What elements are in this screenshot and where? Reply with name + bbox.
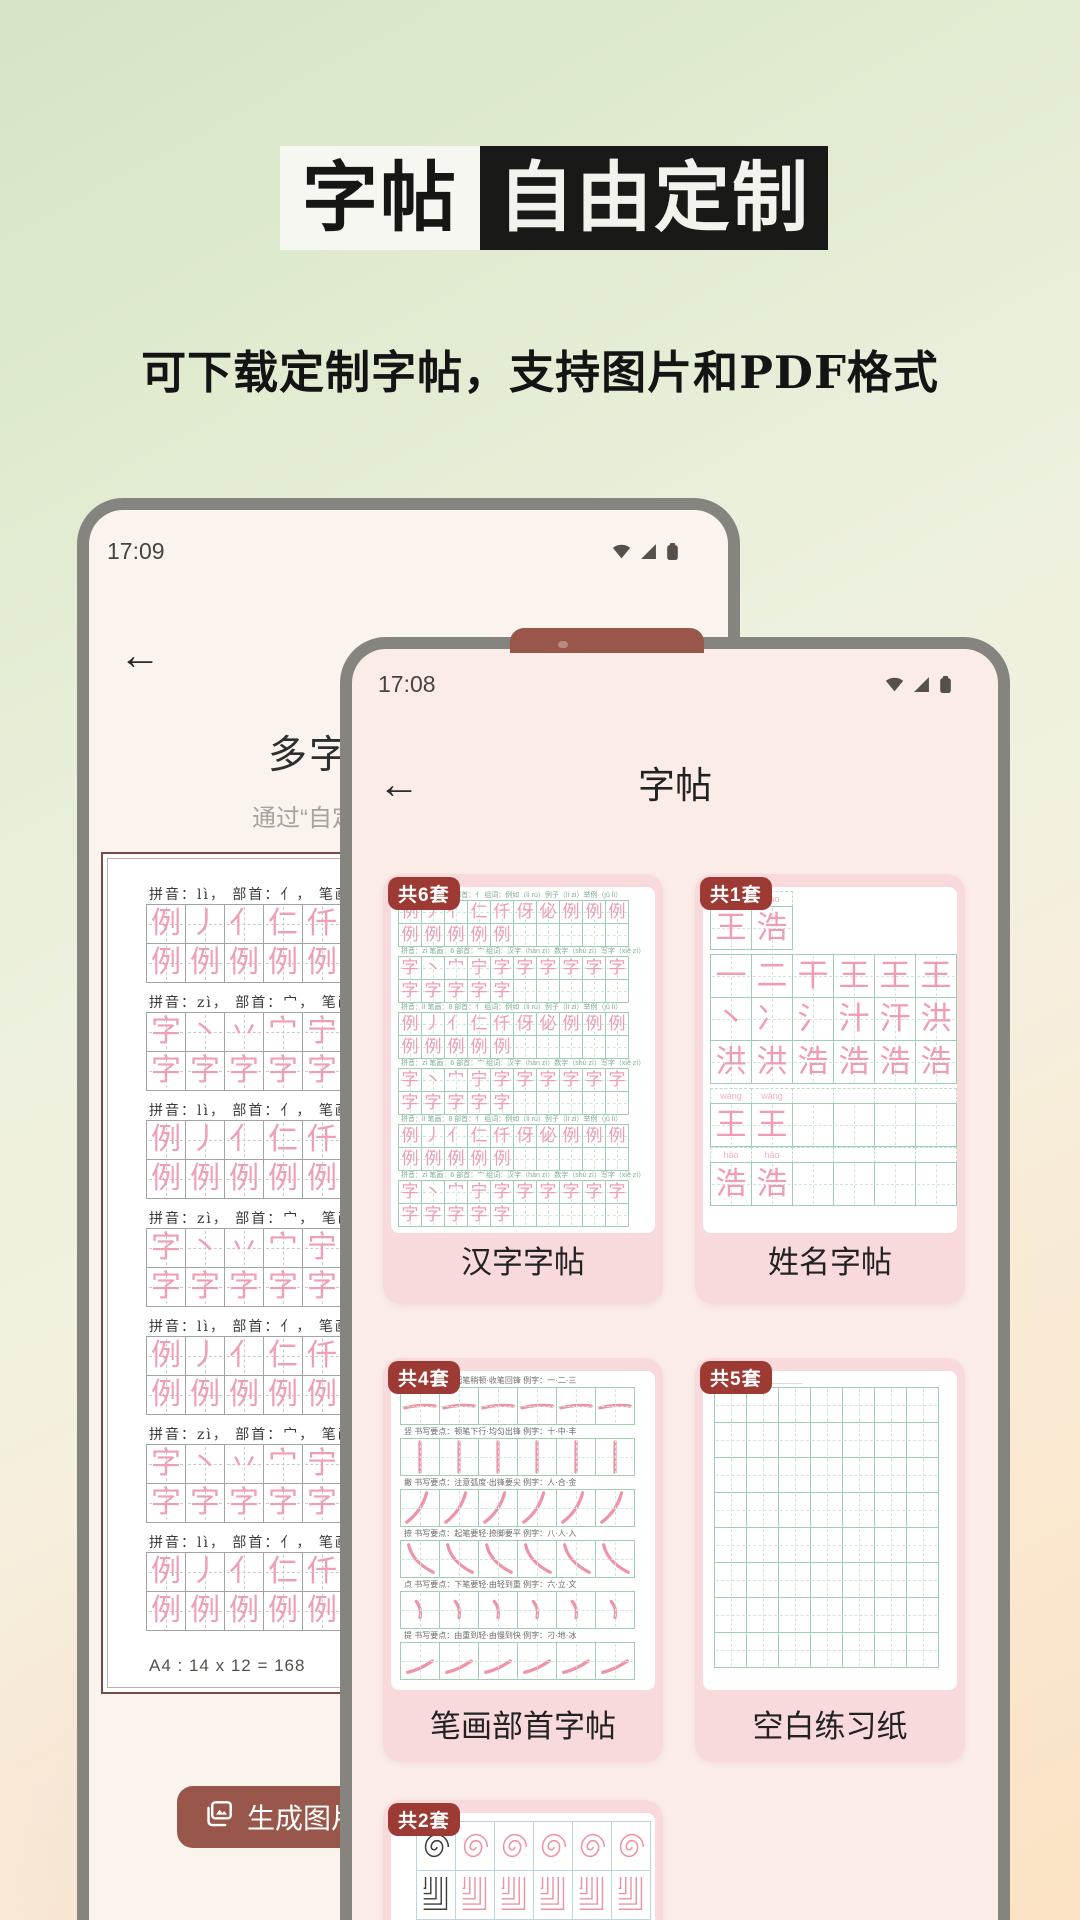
thumb-cell: 亻 xyxy=(444,1124,468,1148)
thumb-cell: 例 xyxy=(582,1012,606,1036)
blank-cell xyxy=(778,1492,811,1528)
worksheet-cell: 仟 xyxy=(302,1336,342,1376)
worksheet-cell: 例 xyxy=(263,1591,303,1631)
pattern-row xyxy=(417,1870,655,1920)
worksheet-cell: 仁 xyxy=(263,1552,303,1592)
worksheet-cell: 亻 xyxy=(224,1552,264,1592)
thumb-cell: 汗 xyxy=(874,997,916,1041)
stroke-cell xyxy=(478,1642,518,1680)
thumb-row: 字字字字字 xyxy=(399,1203,655,1227)
blank-cell xyxy=(810,1422,843,1458)
worksheet-cell: 丿 xyxy=(185,904,225,944)
stroke-row xyxy=(401,1540,655,1578)
thumb-cell: 字 xyxy=(467,1091,491,1115)
worksheet-cell: 仟 xyxy=(302,1552,342,1592)
thumb-cell xyxy=(605,1091,629,1115)
thumb-cell: 例 xyxy=(559,1012,583,1036)
thumb-cell: 字 xyxy=(490,1203,514,1227)
stroke-cell xyxy=(439,1591,479,1629)
thumb-cell: 字 xyxy=(605,1180,629,1204)
thumb-cell: 宀 xyxy=(444,1180,468,1204)
name-stroke-block: 一二干王王王丶冫氵汁汗洪洪洪浩浩浩浩 xyxy=(711,954,957,1084)
worksheet-cell: 仁 xyxy=(263,904,303,944)
cell-signal-icon xyxy=(640,544,657,559)
worksheet-cell: 丿 xyxy=(185,1552,225,1592)
thumb-cell: 例 xyxy=(398,1124,422,1148)
thumb-cell: 佖 xyxy=(536,1012,560,1036)
blank-row xyxy=(715,1632,957,1668)
worksheet-cell: 字 xyxy=(146,1051,186,1091)
thumb-cell: 亻 xyxy=(444,1012,468,1036)
card-count-badge: 共5套 xyxy=(700,1361,772,1394)
thumb-cell: 氵 xyxy=(792,997,834,1041)
worksheet-cell: 丶 xyxy=(185,1012,225,1052)
image-icon xyxy=(203,1798,235,1837)
thumb-cell: 字 xyxy=(490,956,514,980)
phone-mockup-front: 17:08 ← 字帖 共6套拼音：lì 笔画：8 部首：亻 组词：例如（lì r… xyxy=(340,637,1010,1920)
thumb-cell: 佖 xyxy=(536,1124,560,1148)
blank-cell xyxy=(810,1562,843,1598)
blank-cell xyxy=(778,1597,811,1633)
worksheet-cell: 亻 xyxy=(224,904,264,944)
thumb-cell: 例 xyxy=(490,923,514,947)
blank-cell xyxy=(810,1597,843,1633)
blank-cell xyxy=(842,1562,875,1598)
stroke-block: 竖 书写要点：顿笔下行·均匀出锋 例字：十·中·丰 xyxy=(401,1426,655,1476)
phone2-screen: 17:08 ← 字帖 共6套拼音：lì 笔画：8 部首：亻 组词：例如（lì r… xyxy=(352,649,998,1920)
stroke-row-header: 撇 书写要点：注意弧度·出锋要尖 例字：人·合·金 xyxy=(404,1477,655,1488)
thumb-cell: 二 xyxy=(751,954,793,998)
stroke-cell xyxy=(517,1489,557,1527)
thumb-cell xyxy=(833,1103,875,1147)
stroke-cell xyxy=(595,1642,635,1680)
blank-row xyxy=(715,1562,957,1598)
worksheet-cell: 丿 xyxy=(185,1336,225,1376)
thumb-cell: 例 xyxy=(582,900,606,924)
card-count-badge: 共4套 xyxy=(388,1361,460,1394)
thumb-cell: 宁 xyxy=(467,1180,491,1204)
blank-cell xyxy=(906,1562,939,1598)
card-title: 笔画部首字帖 xyxy=(383,1701,663,1746)
thumb-block: 拼音：zì 笔画：6 部首：宀 组词：汉字（hàn zì）数字（shù zì）写… xyxy=(399,1171,655,1227)
worksheet-cell: 例 xyxy=(185,1159,225,1199)
blank-cell xyxy=(810,1527,843,1563)
worksheet-cell: 字 xyxy=(185,1267,225,1307)
worksheet-cell: 字 xyxy=(263,1051,303,1091)
thumb-cell xyxy=(559,1091,583,1115)
pattern-cell-corner xyxy=(572,1870,612,1920)
thumb-row: 字字字字字 xyxy=(399,1091,655,1115)
worksheet-cell: 例 xyxy=(185,943,225,983)
blank-cell xyxy=(842,1527,875,1563)
thumb-cell: 例 xyxy=(444,923,468,947)
thumb-micro-header: 拼音：zì 笔画：6 部首：宀 组词：汉字（hàn zì）数字（shù zì）写… xyxy=(401,1059,655,1068)
battery-icon xyxy=(939,676,952,693)
worksheet-cell: 字 xyxy=(263,1483,303,1523)
worksheet-cell: 宁 xyxy=(302,1012,342,1052)
thumb-pinyin-cell xyxy=(874,1088,916,1104)
worksheet-cell: 丶 xyxy=(185,1444,225,1484)
worksheet-cell: 例 xyxy=(224,1159,264,1199)
thumb-cell: 浩 xyxy=(751,1162,793,1206)
thumb-cell xyxy=(792,1162,834,1206)
thumb-cell: 宁 xyxy=(467,956,491,980)
thumb-cell xyxy=(833,1162,875,1206)
card-title: 汉字字帖 xyxy=(383,1237,663,1282)
thumb-row: 例例例例例 xyxy=(399,923,655,947)
thumb-cell: 例 xyxy=(398,1147,422,1171)
worksheet-cell: 丷 xyxy=(224,1012,264,1052)
thumb-cell xyxy=(582,923,606,947)
worksheet-cell: 例 xyxy=(146,1159,186,1199)
blank-row xyxy=(715,1422,957,1458)
thumb-cell: 例 xyxy=(467,1147,491,1171)
thumb-cell: 字 xyxy=(467,979,491,1003)
thumb-cell: 字 xyxy=(513,1068,537,1092)
worksheet-cell: 仁 xyxy=(263,1336,303,1376)
blank-cell xyxy=(842,1422,875,1458)
thumb-cell: 冫 xyxy=(751,997,793,1041)
blank-cell xyxy=(778,1632,811,1668)
blank-row xyxy=(715,1457,957,1493)
thumb-cell xyxy=(874,1103,916,1147)
worksheet-cell: 字 xyxy=(224,1051,264,1091)
thumb-cell: 一 xyxy=(710,954,752,998)
thumb-row: 洪洪浩浩浩浩 xyxy=(711,1040,957,1084)
blank-cell xyxy=(714,1562,747,1598)
thumb-cell: 字 xyxy=(536,1180,560,1204)
pattern-cell-corner xyxy=(494,1870,534,1920)
blank-cell xyxy=(906,1527,939,1563)
stroke-cell xyxy=(556,1489,596,1527)
hero-title-part2: 自由定制 xyxy=(480,146,828,250)
thumb-cell xyxy=(582,1147,606,1171)
thumb-row: 一二干王王王 xyxy=(711,954,957,998)
thumb-cell xyxy=(792,1103,834,1147)
worksheet-cell: 字 xyxy=(146,1228,186,1268)
thumb-cell: 字 xyxy=(444,979,468,1003)
worksheet-cell: 例 xyxy=(185,1375,225,1415)
blank-cell xyxy=(842,1492,875,1528)
thumb-cell: 字 xyxy=(582,956,606,980)
thumb-cell xyxy=(513,979,537,1003)
worksheet-cell: 字 xyxy=(263,1267,303,1307)
thumb-cell: 例 xyxy=(467,923,491,947)
worksheet-cell: 宀 xyxy=(263,1012,303,1052)
thumb-cell: 仟 xyxy=(490,900,514,924)
stroke-cell xyxy=(595,1540,635,1578)
blank-cell xyxy=(714,1632,747,1668)
thumb-pinyin-row: wángwáng xyxy=(711,1088,957,1104)
thumb-cell xyxy=(536,1147,560,1171)
thumb-cell: 丿 xyxy=(421,1012,445,1036)
blank-cell xyxy=(746,1492,779,1528)
worksheet-cell: 仟 xyxy=(302,1120,342,1160)
stroke-cell xyxy=(517,1591,557,1629)
thumb-pinyin-cell xyxy=(874,1147,916,1163)
hero-title-part1: 字帖 xyxy=(280,146,480,250)
cell-signal-icon xyxy=(913,677,930,692)
blank-cell xyxy=(842,1632,875,1668)
blank-cell xyxy=(714,1492,747,1528)
thumb-row: 例例例例例 xyxy=(399,1147,655,1171)
stroke-cell xyxy=(517,1540,557,1578)
thumb-cell: 宀 xyxy=(444,956,468,980)
stroke-cell xyxy=(478,1540,518,1578)
stroke-cell xyxy=(478,1489,518,1527)
worksheet-cell: 仁 xyxy=(263,1120,303,1160)
stroke-cell xyxy=(400,1489,440,1527)
copybook-card-blank[interactable]: 共5套姓名＿＿＿＿ ＿＿＿＿空白练习纸 xyxy=(695,1358,965,1762)
thumb-micro-header: 拼音：lì 笔画：8 部首：亻 组词：例如（lì rú）例子（lì zi）举例（… xyxy=(401,1115,655,1124)
thumb-cell: 例 xyxy=(582,1124,606,1148)
thumb-cell: 仁 xyxy=(467,900,491,924)
blank-cell xyxy=(842,1387,875,1423)
stroke-cell xyxy=(439,1642,479,1680)
thumb-row: 例丿亻仁仟伢佖例例例 xyxy=(399,1012,655,1036)
thumb-cell: 浩 xyxy=(915,1040,957,1084)
worksheet-cell: 字 xyxy=(302,1051,342,1091)
thumb-cell: 例 xyxy=(444,1147,468,1171)
thumb-row: 字丶宀宁字字字字字字 xyxy=(399,1180,655,1204)
blank-cell xyxy=(714,1597,747,1633)
thumb-cell: 王 xyxy=(874,954,916,998)
blank-cell xyxy=(906,1632,939,1668)
phone2-status-bar: 17:08 xyxy=(378,671,952,698)
thumb-cell: 字 xyxy=(398,979,422,1003)
thumb-cell xyxy=(536,1091,560,1115)
phone1-status-icons xyxy=(612,543,679,560)
worksheet-cell: 宁 xyxy=(302,1228,342,1268)
stroke-cell xyxy=(556,1642,596,1680)
worksheet-cell: 例 xyxy=(146,1375,186,1415)
blank-row xyxy=(715,1492,957,1528)
thumb-row: 字丶宀宁字字字字字字 xyxy=(399,1068,655,1092)
thumb-cell: 干 xyxy=(792,954,834,998)
blank-cell xyxy=(714,1422,747,1458)
worksheet-cell: 字 xyxy=(146,1483,186,1523)
thumb-cell: 字 xyxy=(490,1180,514,1204)
pattern-cell-spiral xyxy=(611,1821,651,1871)
worksheet-cell: 例 xyxy=(146,1552,186,1592)
card-count-badge: 共2套 xyxy=(388,1803,460,1836)
thumb-cell xyxy=(513,1203,537,1227)
thumb-cell: 王 xyxy=(751,1103,793,1147)
stroke-row-header: 捺 书写要点：起笔要轻·捺脚要平 例字：八·人·入 xyxy=(404,1528,655,1539)
thumb-cell: 浩 xyxy=(833,1040,875,1084)
stroke-cell xyxy=(400,1591,440,1629)
thumb-cell: 佖 xyxy=(536,900,560,924)
thumb-cell xyxy=(559,923,583,947)
stroke-block: 提 书写要点：由重到轻·由慢到快 例字：刁·地·冰 xyxy=(401,1630,655,1680)
thumb-pinyin-cell: hào xyxy=(710,1147,752,1163)
thumb-row: 浩浩 xyxy=(711,1162,957,1206)
blank-cell xyxy=(746,1597,779,1633)
thumb-cell: 字 xyxy=(582,1180,606,1204)
thumb-cell: 仟 xyxy=(490,1012,514,1036)
thumb-block: 拼音：zì 笔画：6 部首：宀 组词：汉字（hàn zì）数字（shù zì）写… xyxy=(399,1059,655,1115)
thumb-pinyin-cell xyxy=(792,1088,834,1104)
worksheet-cell: 例 xyxy=(185,1591,225,1631)
blank-cell xyxy=(810,1387,843,1423)
worksheet-cell: 字 xyxy=(302,1483,342,1523)
worksheet-cell: 例 xyxy=(263,1375,303,1415)
worksheet-cell: 字 xyxy=(224,1483,264,1523)
thumb-cell xyxy=(582,1035,606,1059)
thumb-cell xyxy=(874,1162,916,1206)
thumb-cell: 例 xyxy=(421,1035,445,1059)
blank-cell xyxy=(874,1632,907,1668)
thumb-row: 字丶宀宁字字字字字字 xyxy=(399,956,655,980)
phone2-page-title: 字帖 xyxy=(352,755,998,809)
worksheet-cell: 例 xyxy=(224,1375,264,1415)
blank-cell xyxy=(874,1457,907,1493)
thumb-cell: 字 xyxy=(536,956,560,980)
thumb-pinyin-cell: hào xyxy=(751,1147,793,1163)
thumb-pinyin-cell: wáng xyxy=(751,1088,793,1104)
worksheet-cell: 例 xyxy=(302,1591,342,1631)
worksheet-cell: 宀 xyxy=(263,1228,303,1268)
name-practice-block: hàohào浩浩 xyxy=(711,1147,957,1206)
thumb-cell: 字 xyxy=(536,1068,560,1092)
blank-cell xyxy=(906,1457,939,1493)
thumb-pinyin-cell xyxy=(833,1088,875,1104)
thumb-row: 例丿亻仁仟伢佖例例例 xyxy=(399,1124,655,1148)
thumb-cell: 字 xyxy=(490,979,514,1003)
worksheet-cell: 例 xyxy=(302,943,342,983)
thumb-cell: 字 xyxy=(398,956,422,980)
thumb-cell: 字 xyxy=(513,956,537,980)
blank-cell xyxy=(874,1422,907,1458)
thumb-pinyin-cell xyxy=(833,1147,875,1163)
thumb-cell: 例 xyxy=(605,1124,629,1148)
stroke-cell xyxy=(595,1489,635,1527)
thumb-cell: 汁 xyxy=(833,997,875,1041)
thumb-cell: 例 xyxy=(559,900,583,924)
thumb-cell: 字 xyxy=(490,1068,514,1092)
worksheet-cell: 字 xyxy=(185,1051,225,1091)
blank-cell xyxy=(874,1562,907,1598)
card-thumbnail: wánghào王浩一二干王王王丶冫氵汁汗洪洪洪浩浩浩浩wángwáng王王hào… xyxy=(703,887,957,1233)
stroke-cell xyxy=(556,1540,596,1578)
thumb-cell: 字 xyxy=(513,1180,537,1204)
copybook-card-pattern[interactable]: 共2套 xyxy=(383,1800,663,1920)
stroke-cell xyxy=(439,1489,479,1527)
worksheet-footer: A4 : 14 x 12 = 168 xyxy=(149,1656,305,1676)
thumb-cell xyxy=(559,1203,583,1227)
worksheet-cell: 例 xyxy=(302,1375,342,1415)
stroke-cell xyxy=(517,1642,557,1680)
worksheet-cell: 丷 xyxy=(224,1228,264,1268)
worksheet-cell: 例 xyxy=(146,943,186,983)
pattern-cell-corner xyxy=(533,1870,573,1920)
thumb-cell xyxy=(582,1203,606,1227)
thumb-cell: 字 xyxy=(421,1203,445,1227)
thumb-cell xyxy=(513,1147,537,1171)
thumb-row: 丶冫氵汁汗洪 xyxy=(711,997,957,1041)
thumb-cell: 字 xyxy=(605,1068,629,1092)
thumb-cell: 仁 xyxy=(467,1012,491,1036)
stroke-cell xyxy=(595,1591,635,1629)
stroke-cell xyxy=(556,1438,596,1476)
copybook-card-name[interactable]: 共1套wánghào王浩一二干王王王丶冫氵汁汗洪洪洪浩浩浩浩wángwáng王王… xyxy=(695,874,965,1304)
blank-cell xyxy=(810,1632,843,1668)
battery-icon xyxy=(666,543,679,560)
wifi-icon xyxy=(612,544,631,559)
worksheet-cell: 字 xyxy=(146,1444,186,1484)
stroke-cell xyxy=(556,1387,596,1425)
stroke-row-header: 竖 书写要点：顿笔下行·均匀出锋 例字：十·中·丰 xyxy=(404,1426,655,1437)
card-count-badge: 共6套 xyxy=(388,877,460,910)
blank-cell xyxy=(778,1562,811,1598)
thumb-cell: 仁 xyxy=(467,1124,491,1148)
brown-button-peek[interactable] xyxy=(510,628,704,653)
blank-cell xyxy=(778,1457,811,1493)
blank-cell xyxy=(842,1597,875,1633)
thumb-cell: 洪 xyxy=(751,1040,793,1084)
thumb-cell: 字 xyxy=(444,1091,468,1115)
thumb-block: 拼音：lì 笔画：8 部首：亻 组词：例如（lì rú）例子（lì zi）举例（… xyxy=(399,1115,655,1171)
blank-cell xyxy=(874,1492,907,1528)
thumb-cell: 例 xyxy=(398,923,422,947)
blank-cell xyxy=(714,1457,747,1493)
stroke-cell xyxy=(439,1438,479,1476)
thumb-cell: 伢 xyxy=(513,1124,537,1148)
wifi-icon xyxy=(885,677,904,692)
thumb-cell: 洪 xyxy=(710,1040,752,1084)
hero-banner: 字帖 自由定制 xyxy=(280,146,828,250)
thumb-cell xyxy=(536,1035,560,1059)
thumb-cell: 例 xyxy=(490,1147,514,1171)
card-count-badge: 共1套 xyxy=(700,877,772,910)
stroke-cell xyxy=(517,1438,557,1476)
blank-cell xyxy=(874,1597,907,1633)
copybook-card-hanzi[interactable]: 共6套拼音：lì 笔画：8 部首：亻 组词：例如（lì rú）例子（lì zi）… xyxy=(383,874,663,1304)
thumb-cell xyxy=(536,1203,560,1227)
stroke-row-header: 点 书写要点：下笔要轻·由轻到重 例字：六·立·文 xyxy=(404,1579,655,1590)
worksheet-cell: 例 xyxy=(263,1159,303,1199)
pattern-cell-spiral xyxy=(455,1821,495,1871)
stroke-cell xyxy=(517,1387,557,1425)
thumb-cell xyxy=(536,979,560,1003)
copybook-card-stroke[interactable]: 共4套横 书写要点：起笔稍顿·收笔回锋 例字：一·二·三竖 书写要点：顿笔下行·… xyxy=(383,1358,663,1762)
thumb-cell: 丶 xyxy=(421,956,445,980)
thumb-cell xyxy=(536,923,560,947)
thumb-cell xyxy=(582,979,606,1003)
pattern-cell-corner xyxy=(455,1870,495,1920)
stroke-cell xyxy=(439,1540,479,1578)
phone1-status-bar: 17:09 xyxy=(107,538,679,565)
worksheet-cell: 例 xyxy=(263,943,303,983)
phone1-status-time: 17:09 xyxy=(107,538,165,565)
brown-button-peek-dot xyxy=(558,641,568,648)
stroke-cell xyxy=(478,1387,518,1425)
thumb-cell xyxy=(605,979,629,1003)
thumb-cell xyxy=(559,979,583,1003)
thumb-pinyin-cell: wáng xyxy=(710,1088,752,1104)
thumb-cell: 伢 xyxy=(513,1012,537,1036)
worksheet-cell: 例 xyxy=(146,904,186,944)
hero-subtitle: 可下载定制字帖，支持图片和PDF格式 xyxy=(0,336,1080,401)
thumb-cell: 例 xyxy=(421,1147,445,1171)
thumb-cell xyxy=(605,1203,629,1227)
worksheet-cell: 例 xyxy=(224,1591,264,1631)
thumb-row: 王浩 xyxy=(711,906,799,950)
stroke-block: 撇 书写要点：注意弧度·出锋要尖 例字：人·合·金 xyxy=(401,1477,655,1527)
phone1-back-button[interactable]: ← xyxy=(119,634,161,676)
thumb-cell: 丶 xyxy=(421,1068,445,1092)
worksheet-cell: 例 xyxy=(146,1336,186,1376)
